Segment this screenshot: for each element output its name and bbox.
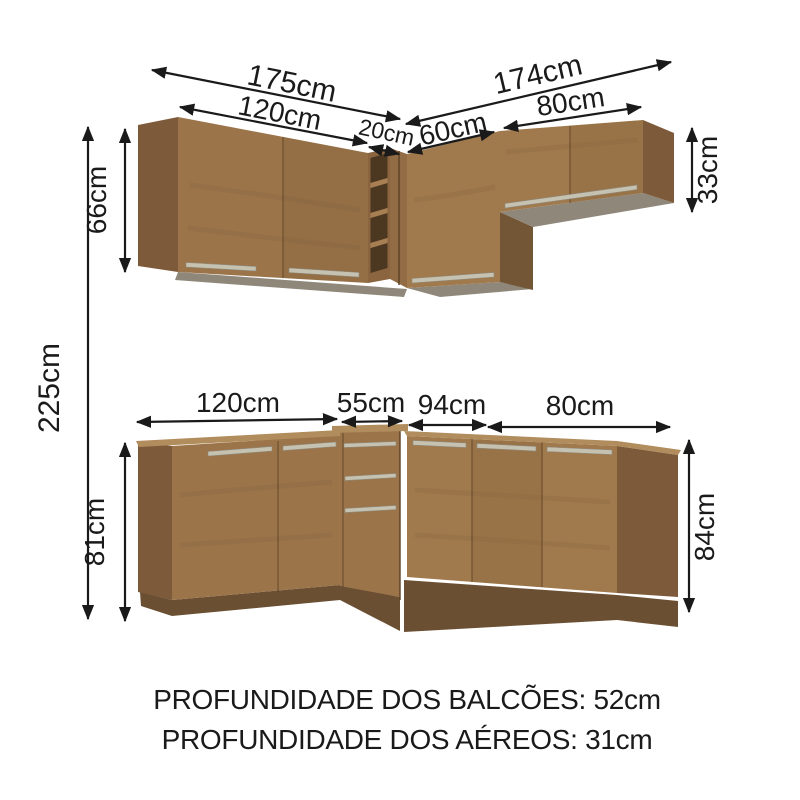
lower-right-end-panel (617, 446, 678, 597)
dim-lower-corner-width-label: 94cm (418, 389, 486, 420)
lower-right-door-shade (472, 439, 542, 587)
dim-total-height-label: 225cm (33, 343, 66, 433)
upper-right-end-panel (643, 120, 674, 203)
lower-cabinets (136, 424, 681, 632)
upper-open-shelf-unit (368, 148, 390, 283)
dim-lower-left-height: 81cm (79, 443, 125, 621)
dim-lower-right-height: 84cm (689, 440, 720, 612)
upper-left-end-panel (138, 117, 178, 272)
dim-lower-right-height-label: 84cm (689, 493, 720, 561)
diagram-canvas: 175cm 174cm 120cm 20cm 60cm 80cm 66cm (0, 0, 800, 800)
dim-lower-drawer-width-label: 55cm (337, 387, 405, 418)
dim-upper-left-height-label: 66cm (81, 166, 112, 234)
shelf-opening (371, 153, 388, 183)
dim-upper-shelf-width: 20cm (356, 114, 416, 154)
lower-left-end-panel (138, 442, 172, 600)
shelf-opening (371, 243, 388, 273)
upper-corner-cabinet-face (407, 131, 500, 288)
dim-lower-left-height-label: 81cm (79, 498, 110, 566)
dim-lower-left-width: 120cm (137, 387, 337, 422)
dim-upper-right-height: 33cm (692, 128, 723, 212)
balcoes-depth-note: PROFUNDIDADE DOS BALCÕES: 52cm (153, 684, 661, 715)
footer-notes: PROFUNDIDADE DOS BALCÕES: 52cm PROFUNDID… (153, 684, 661, 755)
shelf-opening (371, 183, 388, 213)
dim-lower-right-width-label: 80cm (546, 390, 614, 421)
lower-left-cabinet-face (172, 435, 340, 600)
dim-lower-right-width: 80cm (488, 390, 670, 427)
dim-lower-drawer-width: 55cm (337, 387, 405, 422)
dim-lower-corner-width: 94cm (409, 389, 486, 425)
kitchen-dimension-figure: 175cm 174cm 120cm 20cm 60cm 80cm 66cm (0, 0, 800, 800)
lower-corner-drawer-unit-face (340, 429, 400, 597)
dim-lower-left-width-label: 120cm (196, 387, 280, 418)
dim-upper-right-height-label: 33cm (692, 136, 723, 204)
aereos-depth-note: PROFUNDIDADE DOS AÉREOS: 31cm (162, 724, 653, 755)
dim-upper-shelf-width-label: 20cm (356, 114, 416, 151)
shelf-opening (371, 213, 388, 243)
